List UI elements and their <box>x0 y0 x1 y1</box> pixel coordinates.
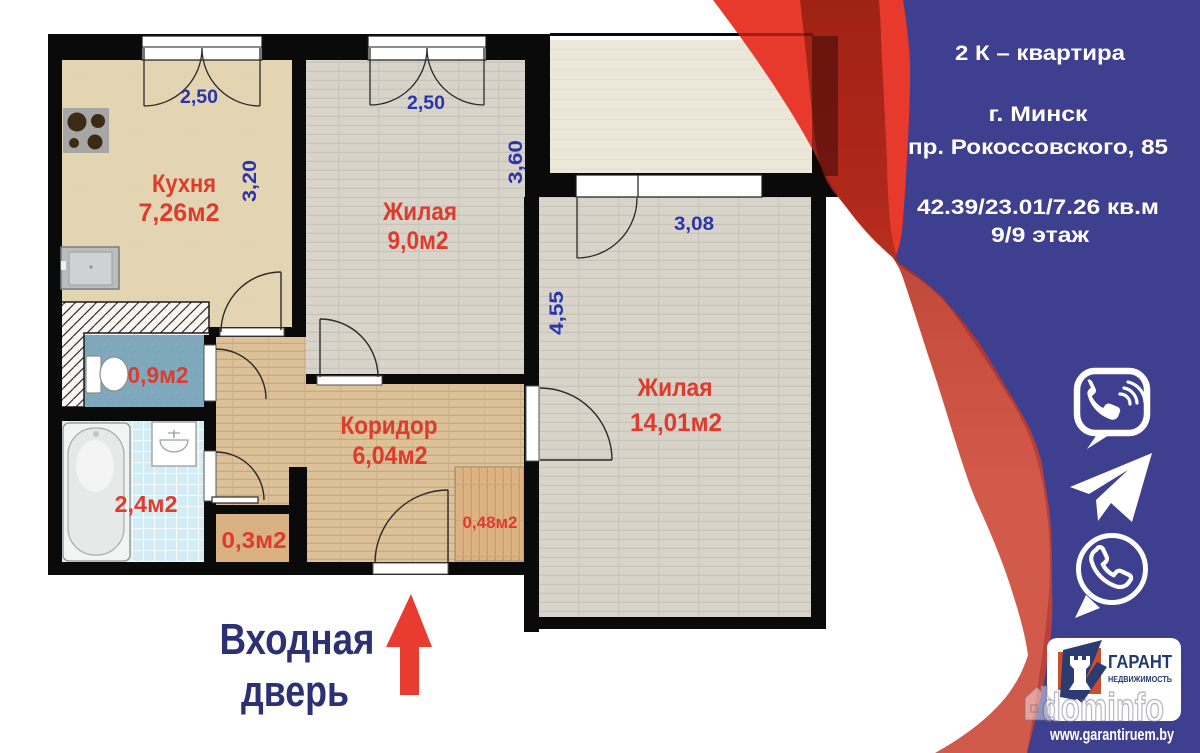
svg-text:0,48м2: 0,48м2 <box>463 513 518 532</box>
svg-text:3,08: 3,08 <box>674 214 714 235</box>
svg-text:6,04м2: 6,04м2 <box>353 442 428 470</box>
svg-text:42.39/23.01/7.26 кв.м: 42.39/23.01/7.26 кв.м <box>917 196 1159 219</box>
svg-text:дверь: дверь <box>241 667 349 716</box>
svg-text:7,26м2: 7,26м2 <box>139 199 220 227</box>
svg-text:Коридор: Коридор <box>341 412 438 440</box>
svg-text:2,4м2: 2,4м2 <box>115 491 178 517</box>
svg-text:3,60: 3,60 <box>506 140 527 184</box>
svg-text:НЕДВИЖИМОСТЬ: НЕДВИЖИМОСТЬ <box>1108 674 1172 684</box>
svg-text:Жилая: Жилая <box>382 198 457 226</box>
svg-text:2,50: 2,50 <box>180 87 218 108</box>
svg-text:Жилая: Жилая <box>637 374 713 402</box>
svg-text:0,9м2: 0,9м2 <box>128 362 189 388</box>
svg-text:Кухня: Кухня <box>152 170 216 198</box>
svg-text:4,55: 4,55 <box>547 290 568 335</box>
svg-text:Входная: Входная <box>220 615 375 664</box>
svg-text:9/9 этаж: 9/9 этаж <box>991 224 1090 247</box>
svg-text:3,20: 3,20 <box>240 160 261 202</box>
svg-text:2,50: 2,50 <box>407 93 445 114</box>
svg-text:г. Минск: г. Минск <box>989 103 1089 126</box>
svg-text:dominfo: dominfo <box>1042 686 1164 730</box>
svg-text:www.garantiruem.by: www.garantiruem.by <box>1049 725 1174 744</box>
svg-text:9,0м2: 9,0м2 <box>388 227 449 255</box>
svg-text:ГАРАНТ: ГАРАНТ <box>1108 652 1172 672</box>
svg-text:2 К – квартира: 2 К – квартира <box>955 42 1125 65</box>
svg-text:пр. Рокоссовского, 85: пр. Рокоссовского, 85 <box>908 136 1168 159</box>
svg-text:14,01м2: 14,01м2 <box>630 409 722 437</box>
svg-text:0,3м2: 0,3м2 <box>222 527 287 553</box>
